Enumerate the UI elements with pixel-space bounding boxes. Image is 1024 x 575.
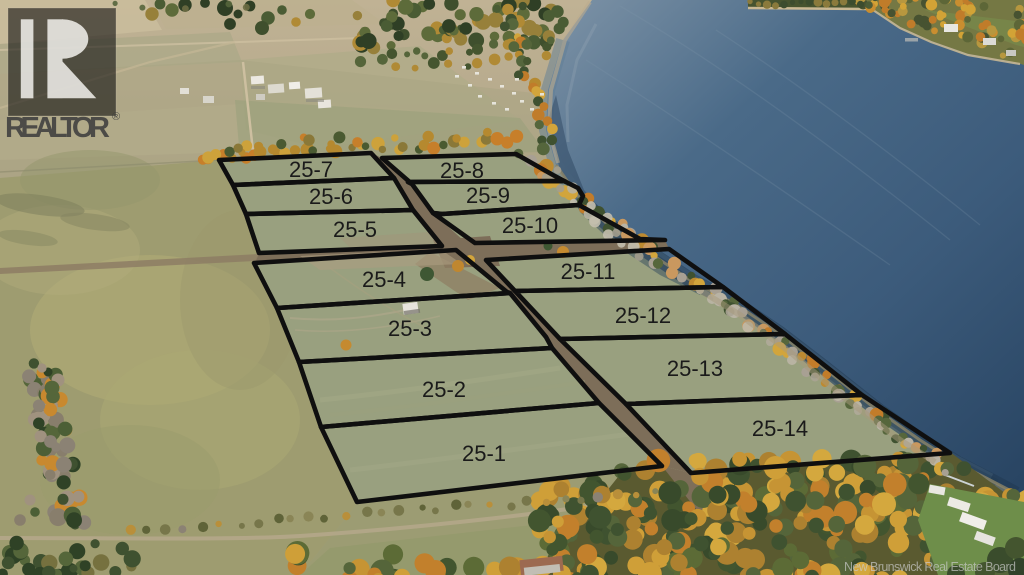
svg-text:25-11: 25-11 [561,259,616,284]
svg-text:®: ® [112,111,120,123]
svg-text:25-8: 25-8 [440,158,484,183]
svg-text:25-13: 25-13 [667,356,723,381]
svg-text:25-12: 25-12 [615,303,671,328]
svg-text:25-6: 25-6 [309,184,353,209]
svg-text:REALTOR: REALTOR [5,112,110,144]
svg-text:25-3: 25-3 [388,316,432,341]
svg-text:New Brunswick Real Estate Boar: New Brunswick Real Estate Board [844,560,1016,574]
svg-text:25-1: 25-1 [462,441,506,466]
svg-text:25-14: 25-14 [752,416,808,441]
svg-text:25-10: 25-10 [502,213,558,238]
svg-text:25-5: 25-5 [333,217,377,242]
svg-text:25-9: 25-9 [466,183,510,208]
svg-text:25-2: 25-2 [422,377,466,402]
svg-text:25-4: 25-4 [362,267,406,292]
svg-text:25-7: 25-7 [289,157,333,182]
